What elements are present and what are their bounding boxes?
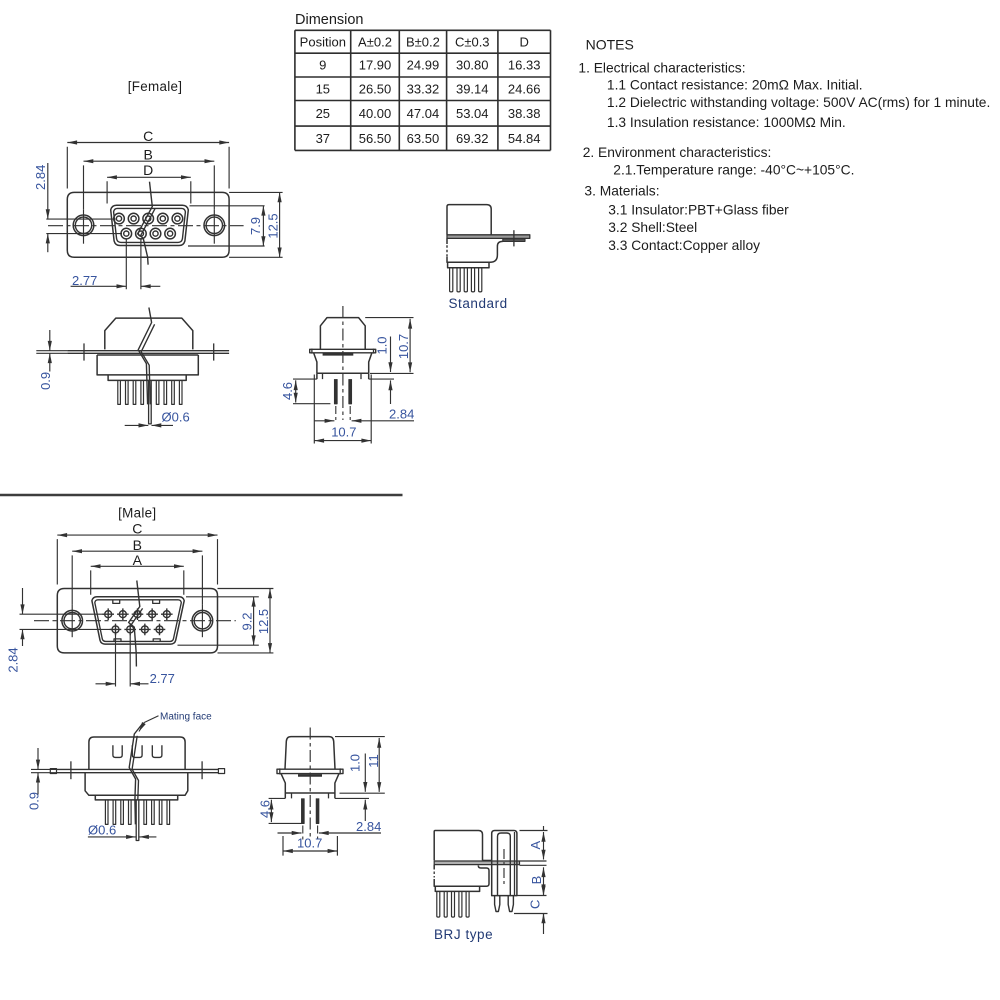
svg-text:1.0: 1.0 bbox=[348, 754, 363, 772]
svg-text:C: C bbox=[143, 128, 153, 144]
svg-text:2. Environment characteristics: 2. Environment characteristics: bbox=[583, 145, 772, 160]
svg-text:A: A bbox=[133, 552, 143, 568]
svg-text:3.2 Shell:Steel: 3.2 Shell:Steel bbox=[608, 220, 697, 235]
svg-text:0.9: 0.9 bbox=[27, 792, 42, 810]
svg-text:2.84: 2.84 bbox=[6, 647, 21, 672]
svg-text:3. Materials:: 3. Materials: bbox=[584, 184, 659, 199]
svg-text:56.50: 56.50 bbox=[359, 131, 392, 146]
svg-text:2.1.Temperature range: -40°C~+: 2.1.Temperature range: -40°C~+105°C. bbox=[613, 163, 854, 178]
svg-text:7.9: 7.9 bbox=[248, 217, 263, 235]
svg-text:NOTES: NOTES bbox=[586, 37, 634, 53]
svg-text:1.1 Contact resistance: 20mΩ M: 1.1 Contact resistance: 20mΩ Max. Initia… bbox=[607, 78, 863, 93]
svg-text:[Female]: [Female] bbox=[128, 79, 183, 94]
svg-text:BRJ type: BRJ type bbox=[434, 927, 493, 942]
svg-text:33.32: 33.32 bbox=[407, 81, 440, 96]
svg-text:B: B bbox=[529, 876, 544, 885]
svg-text:1.0: 1.0 bbox=[375, 336, 390, 354]
svg-text:10.7: 10.7 bbox=[297, 836, 322, 851]
svg-text:C±0.3: C±0.3 bbox=[455, 34, 490, 49]
svg-text:25: 25 bbox=[316, 106, 330, 121]
svg-text:40.00: 40.00 bbox=[359, 106, 392, 121]
svg-text:A: A bbox=[528, 841, 543, 850]
svg-text:Position: Position bbox=[300, 34, 346, 49]
svg-text:24.66: 24.66 bbox=[508, 81, 541, 96]
svg-text:15: 15 bbox=[316, 81, 330, 96]
svg-text:63.50: 63.50 bbox=[407, 131, 440, 146]
svg-text:2.77: 2.77 bbox=[150, 671, 175, 686]
svg-text:12.5: 12.5 bbox=[256, 609, 271, 634]
svg-text:Dimension: Dimension bbox=[295, 12, 364, 28]
svg-text:C: C bbox=[132, 521, 142, 537]
svg-text:1. Electrical characteristics:: 1. Electrical characteristics: bbox=[578, 61, 745, 76]
svg-text:9: 9 bbox=[319, 58, 326, 73]
svg-text:B: B bbox=[133, 537, 142, 553]
svg-text:4.6: 4.6 bbox=[258, 800, 273, 818]
svg-text:24.99: 24.99 bbox=[407, 58, 440, 73]
svg-text:0.9: 0.9 bbox=[38, 372, 53, 390]
svg-text:A±0.2: A±0.2 bbox=[358, 34, 392, 49]
svg-text:2.84: 2.84 bbox=[389, 406, 414, 421]
svg-text:B: B bbox=[144, 147, 153, 163]
svg-text:Ø0.6: Ø0.6 bbox=[88, 823, 116, 838]
svg-text:17.90: 17.90 bbox=[359, 58, 392, 73]
svg-text:39.14: 39.14 bbox=[456, 81, 489, 96]
svg-text:[Male]: [Male] bbox=[118, 506, 156, 521]
svg-text:54.84: 54.84 bbox=[508, 131, 541, 146]
svg-text:12.5: 12.5 bbox=[266, 213, 281, 238]
svg-text:26.50: 26.50 bbox=[359, 81, 392, 96]
svg-text:Ø0.6: Ø0.6 bbox=[162, 410, 190, 425]
svg-text:37: 37 bbox=[316, 131, 330, 146]
svg-text:53.04: 53.04 bbox=[456, 106, 489, 121]
svg-text:2.84: 2.84 bbox=[356, 819, 381, 834]
svg-text:9.2: 9.2 bbox=[240, 612, 255, 630]
svg-text:30.80: 30.80 bbox=[456, 58, 489, 73]
svg-text:2.84: 2.84 bbox=[33, 165, 48, 190]
svg-text:Mating face: Mating face bbox=[160, 711, 212, 722]
svg-text:D: D bbox=[143, 162, 153, 178]
svg-text:3.3 Contact:Copper alloy: 3.3 Contact:Copper alloy bbox=[608, 238, 760, 253]
svg-text:4.6: 4.6 bbox=[280, 382, 295, 400]
svg-text:38.38: 38.38 bbox=[508, 106, 541, 121]
svg-text:D: D bbox=[520, 34, 529, 49]
svg-text:3.1 Insulator:PBT+Glass fiber: 3.1 Insulator:PBT+Glass fiber bbox=[608, 203, 789, 218]
svg-text:69.32: 69.32 bbox=[456, 131, 489, 146]
svg-text:47.04: 47.04 bbox=[407, 106, 440, 121]
svg-text:10.7: 10.7 bbox=[396, 334, 411, 359]
svg-text:1.2 Dielectric withstanding vo: 1.2 Dielectric withstanding voltage: 500… bbox=[607, 95, 990, 110]
svg-text:C: C bbox=[528, 900, 543, 909]
svg-text:16.33: 16.33 bbox=[508, 58, 541, 73]
svg-text:10.7: 10.7 bbox=[331, 425, 356, 440]
svg-text:Standard: Standard bbox=[449, 296, 508, 311]
svg-text:1.3 Insulation resistance: 100: 1.3 Insulation resistance: 1000MΩ Min. bbox=[607, 115, 846, 130]
svg-text:B±0.2: B±0.2 bbox=[406, 34, 440, 49]
